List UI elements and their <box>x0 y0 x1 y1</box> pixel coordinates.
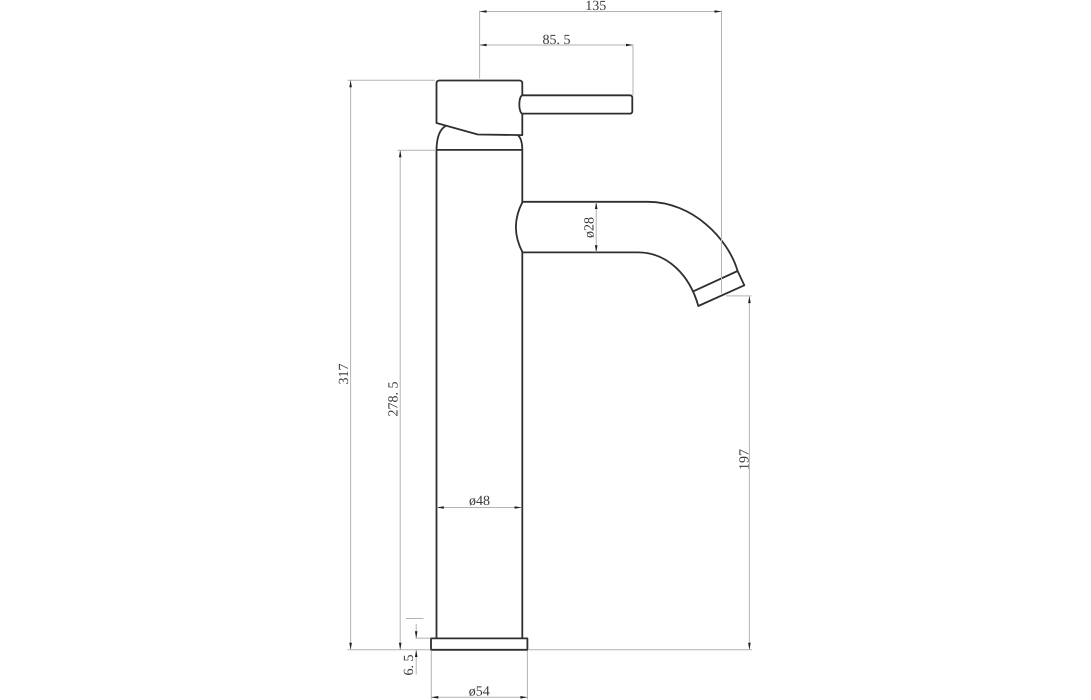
svg-text:278. 5: 278. 5 <box>387 382 402 417</box>
svg-text:6. 5: 6. 5 <box>402 655 417 676</box>
svg-text:ø28: ø28 <box>583 217 598 238</box>
svg-text:135: 135 <box>585 0 606 14</box>
svg-text:85. 5: 85. 5 <box>543 33 571 48</box>
svg-text:197: 197 <box>738 449 753 470</box>
svg-text:317: 317 <box>337 364 352 385</box>
svg-text:ø48: ø48 <box>469 494 490 509</box>
svg-text:ø54: ø54 <box>469 685 490 700</box>
